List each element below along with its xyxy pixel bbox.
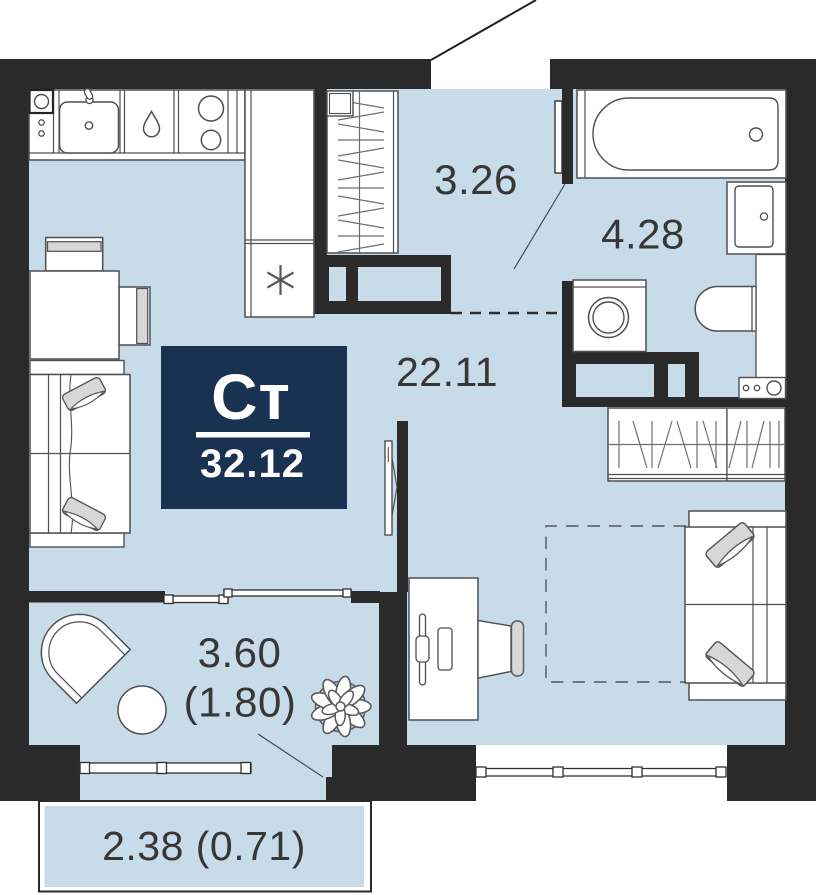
svg-text:32.12: 32.12 <box>200 442 305 486</box>
svg-text:22.11: 22.11 <box>396 349 498 395</box>
svg-text:(1.80): (1.80) <box>184 679 297 726</box>
svg-text:3.60: 3.60 <box>198 629 282 676</box>
svg-text:4.28: 4.28 <box>601 211 685 258</box>
svg-text:Ст: Ст <box>211 361 291 433</box>
svg-text:2.38 (0.71): 2.38 (0.71) <box>102 823 306 869</box>
svg-text:3.26: 3.26 <box>434 156 518 203</box>
